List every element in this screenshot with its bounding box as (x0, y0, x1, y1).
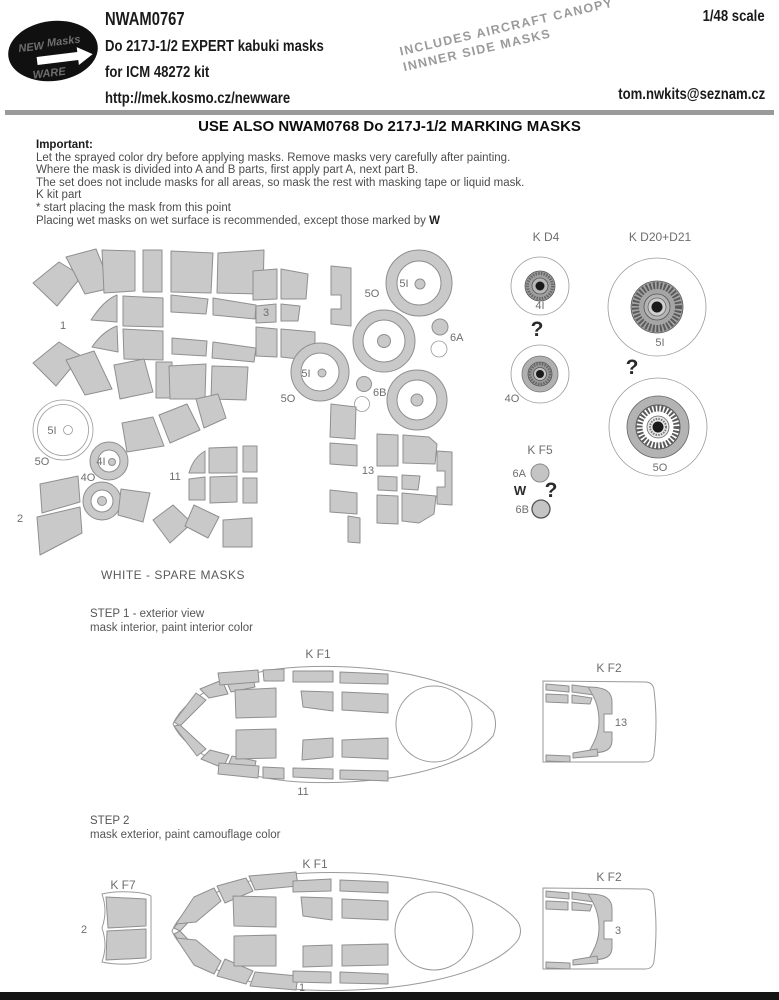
label-2: 2 (81, 924, 87, 936)
label-5o: 5O (653, 462, 668, 474)
step2-diagram: K F7 2 K F1 (81, 857, 656, 994)
question-mark: ? (545, 479, 558, 502)
label-13: 13 (362, 465, 374, 477)
wheel-4i: 4I (511, 257, 569, 315)
canopy-window (396, 686, 472, 762)
canopy-window (395, 892, 473, 970)
label-2: 2 (17, 513, 23, 525)
label-1: 1 (60, 320, 66, 332)
part-label-kf7: K F7 (110, 878, 136, 892)
label-5o: 5O (281, 393, 296, 405)
label-6b: 6B (373, 387, 386, 399)
label-11: 11 (297, 786, 308, 798)
part-label-kd4: K D4 (533, 230, 560, 244)
label-4o: 4O (81, 472, 96, 484)
wheel-5o: 5O (609, 378, 707, 476)
label-4o: 4O (505, 393, 520, 405)
wheel-5i: 5I (608, 258, 706, 356)
label-5i: 5I (399, 278, 408, 290)
kf5-masks: 6A W ? 6B (513, 464, 558, 518)
mask-group-11 (118, 394, 257, 547)
wheel-masks-column: K D4 4I ? 4O K D20+D21 (505, 230, 707, 518)
part-label-kf2: K F2 (596, 661, 622, 675)
footer-bar (0, 992, 779, 1000)
part-label-kf5: K F5 (527, 443, 553, 457)
label-4i: 4I (96, 456, 105, 468)
label-5o: 5O (365, 288, 380, 300)
label-4i: 4I (535, 300, 544, 312)
label-5i: 5I (655, 337, 664, 349)
mask-group-13 (377, 434, 452, 524)
label-13: 13 (615, 717, 627, 729)
mask-group-1 (33, 249, 264, 400)
part-label-kf1: K F1 (305, 647, 331, 661)
label-6a: 6A (450, 332, 464, 344)
part-label-kf1: K F1 (302, 857, 328, 871)
wheel-4o: 4O (505, 345, 569, 405)
diagram-canvas: 1 2 3 11 13 5O 5I 5I 5O 5I 5O 4I 4O 6A 6… (0, 0, 779, 1000)
instruction-sheet: Masks NEW WARE NWAM0767 Do 217J-1/2 EXPE… (0, 0, 779, 1000)
label-3: 3 (615, 925, 621, 937)
label-11: 11 (169, 471, 180, 483)
label-5o: 5O (35, 456, 50, 468)
part-label-kd20: K D20+D21 (629, 230, 692, 244)
question-mark: ? (626, 356, 639, 379)
label-6a: 6A (513, 468, 527, 480)
wet-symbol: W (514, 483, 527, 498)
question-mark: ? (531, 318, 544, 341)
mask-strips (330, 404, 360, 543)
part-label-kf2: K F2 (596, 870, 622, 884)
label-6b: 6B (516, 504, 529, 516)
label-3: 3 (263, 307, 269, 319)
label-5i: 5I (301, 368, 310, 380)
step1-diagram: K F1 (173, 647, 656, 798)
mask-sheet-diagram: 1 2 3 11 13 5O 5I 5I 5O 5I 5O 4I 4O 6A 6… (17, 249, 464, 555)
mask-group-2 (37, 476, 82, 555)
label-5i: 5I (47, 425, 56, 437)
